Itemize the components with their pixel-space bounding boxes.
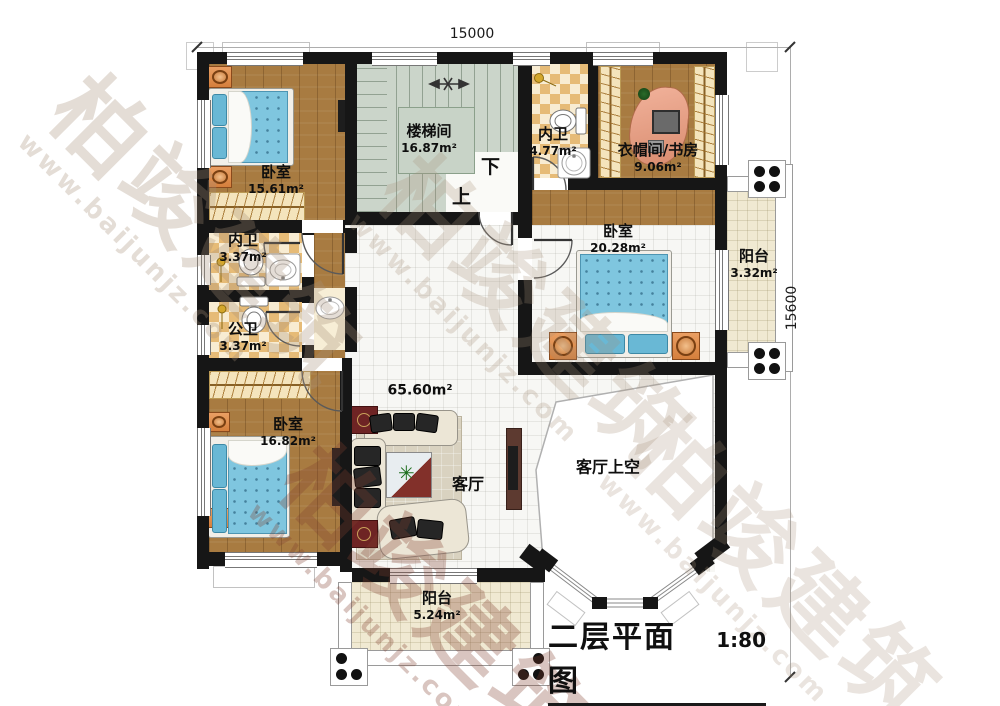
bed-pillow <box>212 127 227 159</box>
wall <box>345 228 357 253</box>
plan-title: 二层平面图 <box>548 612 704 700</box>
room-name: 卧室 <box>590 223 646 241</box>
wall <box>340 358 352 572</box>
door-opening <box>302 303 314 345</box>
window <box>197 100 211 168</box>
railing <box>350 650 534 666</box>
window <box>372 52 437 66</box>
sofa-cushion <box>415 413 439 434</box>
tv <box>508 446 518 490</box>
wall <box>518 52 532 178</box>
room-name: 卧室 <box>260 416 316 434</box>
wall <box>588 52 598 178</box>
side-table <box>350 520 378 548</box>
room-name: 客厅上空 <box>576 459 640 478</box>
column-marker <box>748 342 786 380</box>
room-name: 楼梯间 <box>401 123 457 141</box>
column-marker <box>330 648 368 686</box>
dimension-right-value: 15600 <box>784 278 800 338</box>
wall <box>518 362 727 375</box>
room-label-bedroom-right: 卧室 20.28m² <box>590 223 646 255</box>
room-area: 16.87m² <box>401 141 457 155</box>
room-area: 15.61m² <box>248 182 304 196</box>
sink-alcove <box>314 288 345 350</box>
room-area: 3.37m² <box>219 250 266 264</box>
bed-pillow <box>628 334 668 354</box>
wall <box>345 52 357 220</box>
balcony-sliding-door <box>390 568 477 584</box>
bed-pillow <box>585 334 625 354</box>
room-name: 阳台 <box>413 590 460 608</box>
door-opening <box>532 178 568 190</box>
sofa-cushion <box>354 488 381 508</box>
window <box>197 255 211 285</box>
column-marker <box>512 648 550 686</box>
nightstand <box>208 166 232 188</box>
floor-bath-top <box>530 64 588 178</box>
room-name: 客厅 <box>452 476 484 495</box>
column-marker <box>748 160 786 198</box>
room-label-bath-top: 内卫 4.77m² <box>529 126 576 158</box>
room-name: 阳台 <box>730 248 777 266</box>
room-area: 5.24m² <box>413 608 460 622</box>
plant-icon <box>638 88 650 100</box>
title-block: 二层平面图 1:80 本层建筑面积： 190.69m² 层高： 3.2m <box>548 612 766 706</box>
room-label-balcony-right: 阳台 3.32m² <box>730 248 777 280</box>
room-area: 4.77m² <box>529 144 576 158</box>
nightstand <box>549 332 577 360</box>
room-name: 公卫 <box>219 321 266 339</box>
window <box>227 52 303 66</box>
room-area: 16.82m² <box>260 434 316 448</box>
wall <box>345 287 357 352</box>
stair-up-label: 上 <box>452 188 471 207</box>
window <box>513 52 550 66</box>
nightstand <box>672 332 700 360</box>
wall <box>352 568 390 582</box>
living-area-value: 65.60m² <box>387 383 452 400</box>
door-opening <box>302 235 314 277</box>
room-name: 衣帽间/书房 <box>618 142 698 160</box>
computer-monitor <box>652 110 680 134</box>
plan-title-row: 二层平面图 1:80 <box>548 612 766 706</box>
railing <box>530 582 544 654</box>
wall <box>345 212 480 225</box>
window <box>715 95 729 165</box>
room-area: 65.60m² <box>387 383 452 400</box>
wall <box>477 568 545 582</box>
tv <box>338 100 345 132</box>
room-label-bedroom-bottomleft: 卧室 16.82m² <box>260 416 316 448</box>
room-name: 内卫 <box>219 232 266 250</box>
wall <box>209 290 302 302</box>
wardrobe <box>209 192 305 222</box>
room-label-living-void: 客厅上空 <box>576 459 640 478</box>
window-sill <box>213 566 315 588</box>
nightstand <box>208 66 232 88</box>
room-area: 3.37m² <box>219 339 266 353</box>
nightstand <box>208 412 230 432</box>
room-label-bedroom-topleft: 卧室 15.61m² <box>248 164 304 196</box>
window <box>197 428 211 516</box>
wardrobe <box>209 371 311 399</box>
bed-pillow <box>212 444 227 488</box>
wall <box>518 190 532 375</box>
sofa-cushion <box>369 413 393 434</box>
window <box>593 52 653 66</box>
window <box>225 552 317 568</box>
door-opening <box>302 358 342 371</box>
room-label-living: 客厅 <box>452 476 484 495</box>
room-label-cloak-study: 衣帽间/书房 9.06m² <box>618 142 698 174</box>
room-label-stairwell: 楼梯间 16.87m² <box>401 123 457 155</box>
bed-sheet <box>228 91 252 163</box>
stair-side-treads <box>357 64 387 212</box>
wall <box>512 212 518 225</box>
stair-down-label: 下 <box>481 158 500 177</box>
balcony-door-window <box>715 250 729 330</box>
bed-pillow <box>212 489 227 533</box>
plant-icon <box>398 463 415 483</box>
sofa-cushion <box>354 446 381 466</box>
sofa-cushion <box>393 413 415 431</box>
room-area: 9.06m² <box>618 160 698 174</box>
dimension-line-top <box>197 47 790 48</box>
room-name: 内卫 <box>529 126 576 144</box>
room-area: 3.32m² <box>730 266 777 280</box>
bed-pillow <box>212 94 227 126</box>
door-opening <box>302 220 343 233</box>
room-area: 20.28m² <box>590 241 646 255</box>
sofa-cushion <box>416 519 444 541</box>
floorplan-canvas: 15000 15600 <box>0 0 1000 706</box>
room-label-bath-inner: 内卫 3.37m² <box>219 232 266 264</box>
room-label-balcony-bottom: 阳台 5.24m² <box>413 590 460 622</box>
dimension-top-value: 15000 <box>442 26 502 42</box>
plan-scale: 1:80 <box>716 628 766 652</box>
room-label-bath-public: 公卫 3.37m² <box>219 321 266 353</box>
door-opening <box>518 238 532 280</box>
railing <box>338 582 352 654</box>
room-name: 卧室 <box>248 164 304 182</box>
sofa-cushion <box>353 465 382 488</box>
window <box>197 325 211 355</box>
